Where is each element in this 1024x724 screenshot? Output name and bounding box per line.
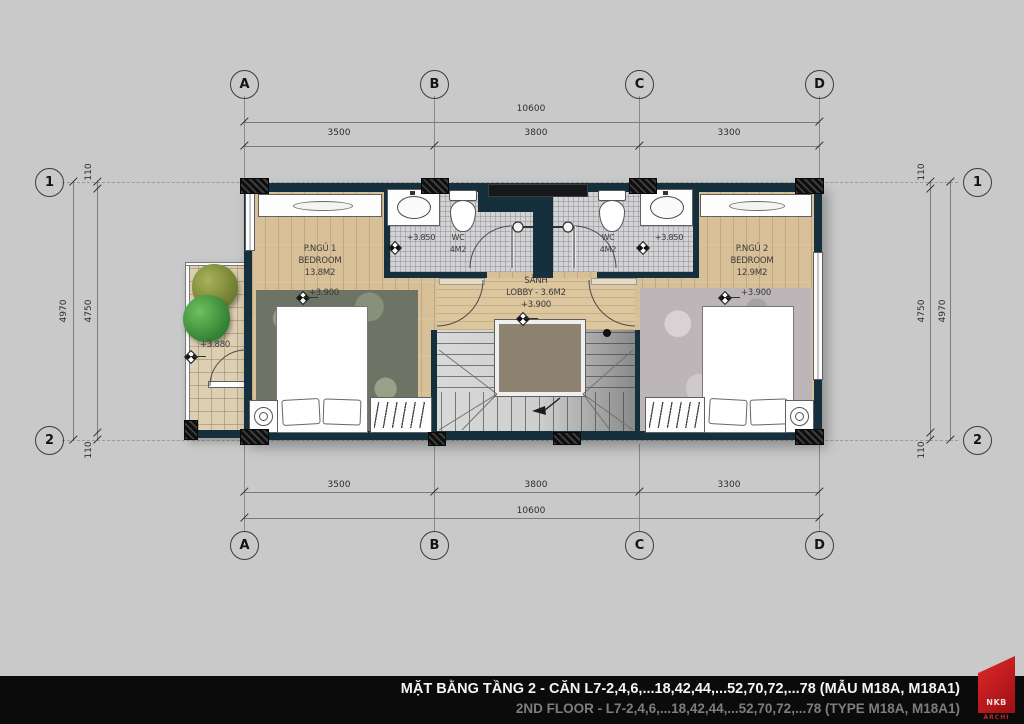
- dim-line-spans-top: [244, 146, 819, 147]
- bedroom1-name-vi: P.NGỦ 1: [304, 244, 336, 254]
- column: [428, 432, 446, 446]
- grid-bubble-1-left: 1: [35, 168, 64, 197]
- dim-offset-left-bottom: 110: [84, 441, 94, 458]
- bedroom1-window: [245, 193, 255, 251]
- firm-logo: NKB ARCHI: [978, 656, 1015, 724]
- dim-span-ab-bottom: 3500: [328, 480, 351, 490]
- toilet-icon: [597, 190, 625, 231]
- toilet-icon: [448, 190, 476, 231]
- balcony-door-leaf: [208, 381, 248, 388]
- column: [421, 178, 449, 194]
- dim-span-bc-top: 3800: [525, 128, 548, 138]
- dim-offset-left-top: 110: [84, 163, 94, 180]
- dim-offset-right-bottom: 110: [917, 441, 927, 458]
- column: [240, 178, 269, 194]
- dim-line-inner-left: [97, 182, 98, 440]
- wc2-area: 4M2: [600, 245, 616, 254]
- grid-bubble-2-right: 2: [963, 426, 992, 455]
- lobby-name-vi: SẢNH: [524, 276, 547, 286]
- wc1-name: WC: [451, 233, 464, 242]
- sink-icon: [640, 189, 693, 226]
- bedroom2-level: +3.900: [741, 288, 771, 298]
- dim-depth-right: 4970: [938, 300, 948, 323]
- bedroom2-cabinet: [700, 194, 812, 217]
- wc2-level: +3.850: [655, 233, 683, 242]
- tree-icon: [183, 295, 230, 342]
- house: P.NGỦ 1 BEDROOM 13.8M2 +3.900 P.NGỦ 2 BE…: [244, 183, 822, 440]
- bedroom1-wardrobe: [370, 397, 432, 433]
- stair-void: [495, 320, 585, 396]
- dim-line-spans-bottom: [244, 492, 819, 493]
- column: [795, 429, 824, 445]
- bedroom1-area: 13.8M2: [305, 268, 335, 278]
- dim-line-total-top: [244, 122, 819, 123]
- dim-total-bottom: 10600: [517, 506, 546, 516]
- column: [629, 178, 657, 194]
- top-window-band: [488, 184, 588, 197]
- grid-col-b-line: [434, 96, 435, 178]
- wc1-level: +3.850: [407, 233, 435, 242]
- grid-bubble-b-bottom: B: [420, 531, 449, 560]
- door-threshold: [591, 278, 637, 285]
- title-en: 2ND FLOOR - L7-2,4,6,...18,42,44,...52,7…: [516, 701, 960, 716]
- grid-bubble-b-top: B: [420, 70, 449, 99]
- dim-span-cd-top: 3300: [718, 128, 741, 138]
- floor-plan-sheet: 10600 3500 3800 3300 3500 3800 3300 1060…: [0, 0, 1024, 724]
- column: [553, 432, 581, 445]
- dim-line-depth-right: [950, 182, 951, 440]
- door-threshold: [439, 278, 485, 285]
- lobby-name-en: LOBBY - 3.6M2: [506, 288, 566, 298]
- dim-inner-right: 4750: [917, 300, 927, 323]
- bedroom1-bed: [276, 306, 368, 433]
- bedroom2-area: 12.9M2: [737, 268, 767, 278]
- grid-bubble-2-left: 2: [35, 426, 64, 455]
- grid-col-d-line: [819, 96, 820, 178]
- wc1-area: 4M2: [450, 245, 466, 254]
- wall: [693, 192, 699, 278]
- dim-span-cd-bottom: 3300: [718, 480, 741, 490]
- title-vi: MẶT BẰNG TẦNG 2 - CĂN L7-2,4,6,...18,42,…: [401, 681, 960, 697]
- grid-bubble-d-top: D: [805, 70, 834, 99]
- sink-icon: [387, 189, 440, 226]
- grid-bubble-c-top: C: [625, 70, 654, 99]
- grid-bubble-c-bottom: C: [625, 531, 654, 560]
- grid-col-a-line: [244, 96, 245, 178]
- dim-line-depth-left: [73, 182, 74, 440]
- logo-text: NKB: [978, 698, 1015, 707]
- column: [795, 178, 824, 194]
- balcony-bottom-wall: [190, 430, 245, 438]
- title-bar: MẶT BẰNG TẦNG 2 - CĂN L7-2,4,6,...18,42,…: [0, 676, 1024, 724]
- column: [184, 420, 198, 440]
- bedroom1-cabinet: [258, 194, 382, 217]
- grid-bubble-a-top: A: [230, 70, 259, 99]
- logo-subtext: ARCHI: [978, 714, 1015, 721]
- dim-span-bc-bottom: 3800: [525, 480, 548, 490]
- bedroom2-bed: [702, 306, 794, 433]
- bedroom2-window: [813, 252, 823, 380]
- column: [240, 429, 269, 445]
- grid-col-c-line: [639, 96, 640, 178]
- grid-bubble-a-bottom: A: [230, 531, 259, 560]
- dim-span-ab-top: 3500: [328, 128, 351, 138]
- lobby-level: +3.900: [521, 300, 551, 310]
- dim-inner-left: 4750: [84, 300, 94, 323]
- bedroom1-name-en: BEDROOM: [299, 256, 342, 266]
- bedroom2-wardrobe: [645, 397, 705, 433]
- dim-depth-left: 4970: [59, 300, 69, 323]
- wc2-name: WC: [601, 233, 614, 242]
- balcony-level: +3.880: [200, 340, 230, 350]
- grid-bubble-1-right: 1: [963, 168, 992, 197]
- dim-line-total-bottom: [244, 518, 819, 519]
- dim-offset-right-top: 110: [917, 163, 927, 180]
- dim-total-top: 10600: [517, 104, 546, 114]
- bedroom2-name-en: BEDROOM: [731, 256, 774, 266]
- bedroom2-name-vi: P.NGỦ 2: [736, 244, 768, 254]
- dim-line-inner-right: [930, 182, 931, 440]
- grid-bubble-d-bottom: D: [805, 531, 834, 560]
